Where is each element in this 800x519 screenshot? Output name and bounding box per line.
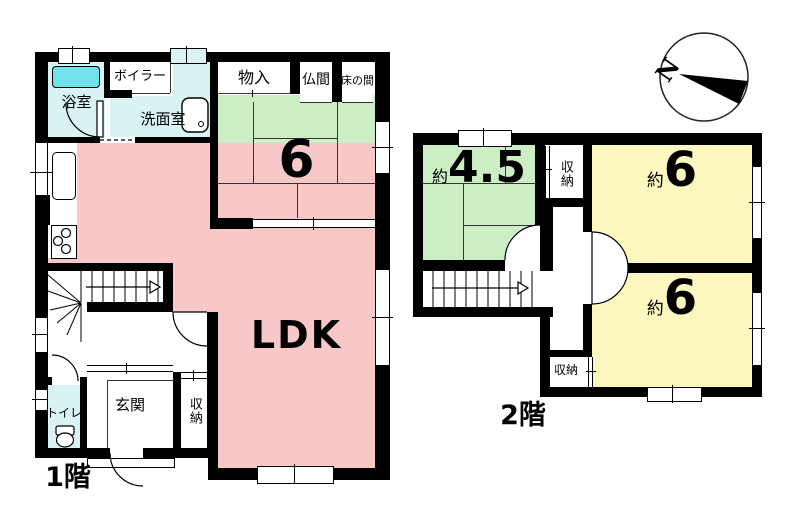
- toilet-bowl: [57, 433, 74, 447]
- label-room6-upper: 約6: [592, 145, 752, 263]
- label-approx: 約: [432, 169, 448, 186]
- label-room45: 約4.5: [423, 145, 535, 260]
- label-closet-1f: 収納: [181, 388, 207, 434]
- stairs-1f: [48, 271, 158, 342]
- label-floor1-title: 1階: [36, 462, 100, 494]
- label-storage: 物入: [218, 68, 290, 88]
- label-6-lower-value: 6: [664, 273, 697, 323]
- stove-burners: [54, 229, 71, 254]
- label-approx: 約: [647, 301, 664, 319]
- label-6-upper-value: 6: [664, 145, 697, 195]
- label-floor2-title: 2階: [490, 400, 556, 432]
- door-arc-entrance: [110, 453, 143, 486]
- label-entrance: 玄関: [87, 396, 173, 416]
- floor-plan: 浴室 ボイラー 洗面室 物入 仏間 床の間 6 LDK トイレ 玄関 収納 1階…: [0, 0, 800, 519]
- label-tatami6-1f: 6: [218, 102, 375, 218]
- north-arrow-icon: [679, 74, 748, 104]
- label-bathroom: 浴室: [48, 92, 105, 114]
- door-arc-toilet: [52, 355, 78, 381]
- label-boiler: ボイラー: [108, 68, 172, 86]
- label-washroom: 洗面室: [118, 110, 208, 130]
- label-closet-2f-bottom: 収納: [540, 360, 592, 380]
- label-tokonoma: 床の間: [340, 74, 375, 88]
- stairs-2f: [433, 271, 532, 307]
- label-toilet: トイレ: [44, 404, 84, 422]
- stair-arrow-head-2f: [518, 282, 528, 294]
- label-butsuma: 仏間: [298, 70, 334, 90]
- label-approx: 約: [647, 173, 664, 191]
- label-closet-2f-top: 収納: [548, 150, 582, 198]
- label-room6-lower: 約6: [592, 273, 752, 387]
- label-45-value: 4.5: [448, 145, 526, 191]
- label-ldk: LDK: [218, 263, 375, 409]
